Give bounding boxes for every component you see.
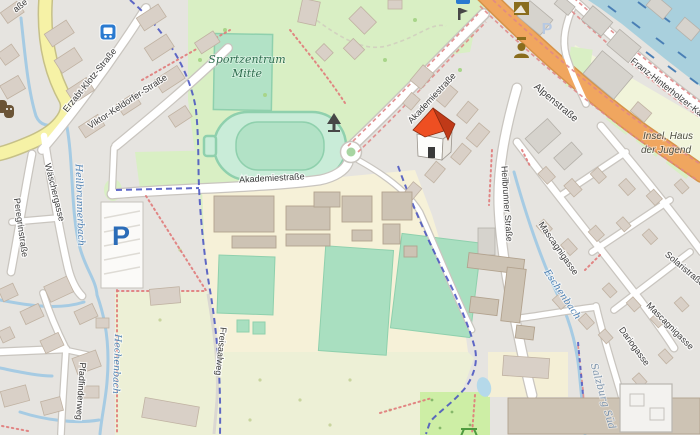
parking-garage-label: P bbox=[112, 221, 130, 251]
area-label-sportzentrum-line2: Mitte bbox=[231, 67, 263, 80]
area-label-insel-line2: der Jugend bbox=[641, 145, 691, 156]
parking-area-label: P bbox=[542, 21, 553, 38]
area-label-sportzentrum-line1: Sportzentrum bbox=[208, 53, 285, 66]
map-canvas[interactable]: aße Erzabt-Klotz-Straße Viktor-Keldorfer… bbox=[0, 0, 700, 435]
stream-label-hechenbach: Hechenbach bbox=[110, 333, 123, 395]
area-label-insel-line1: Insel, Haus bbox=[643, 131, 693, 142]
artwork-icon[interactable] bbox=[514, 2, 529, 15]
bus-stop-icon-partial[interactable] bbox=[456, 0, 470, 4]
bus-stop-icon[interactable] bbox=[100, 24, 116, 40]
